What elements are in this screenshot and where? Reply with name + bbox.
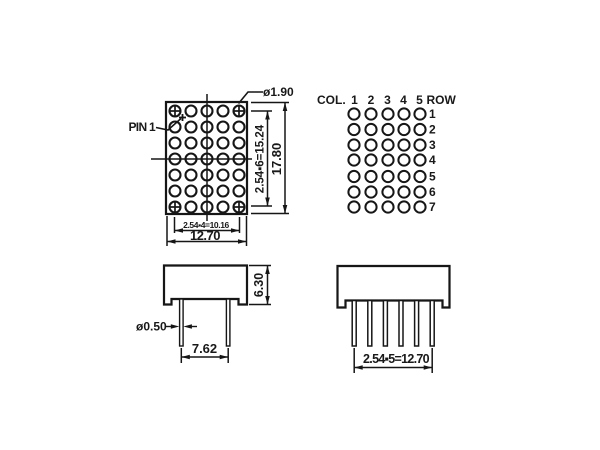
svg-text:ø1.90: ø1.90: [263, 85, 294, 99]
svg-text:2: 2: [368, 93, 375, 107]
svg-text:4: 4: [400, 93, 407, 107]
svg-text:5: 5: [429, 170, 436, 184]
svg-text:PIN 1: PIN 1: [129, 120, 157, 134]
svg-text:2.54▪5=12.70: 2.54▪5=12.70: [363, 352, 430, 366]
svg-text:17.80: 17.80: [269, 143, 284, 176]
svg-text:2: 2: [429, 123, 436, 137]
svg-text:3: 3: [384, 93, 391, 107]
svg-text:2.54▪6=15.24: 2.54▪6=15.24: [255, 124, 267, 193]
svg-text:7.62: 7.62: [192, 341, 217, 356]
svg-text:7: 7: [429, 200, 436, 214]
svg-text:6: 6: [429, 185, 436, 199]
svg-text:6.30: 6.30: [252, 273, 266, 297]
svg-text:ROW: ROW: [427, 93, 457, 107]
svg-text:12.70: 12.70: [190, 228, 220, 243]
svg-text:3: 3: [429, 138, 436, 152]
svg-text:4: 4: [429, 153, 436, 167]
svg-text:1: 1: [429, 107, 436, 121]
svg-text:COL.: COL.: [317, 93, 346, 107]
svg-text:ø0.50: ø0.50: [136, 320, 167, 334]
svg-text:1: 1: [351, 93, 358, 107]
svg-text:5: 5: [416, 93, 423, 107]
